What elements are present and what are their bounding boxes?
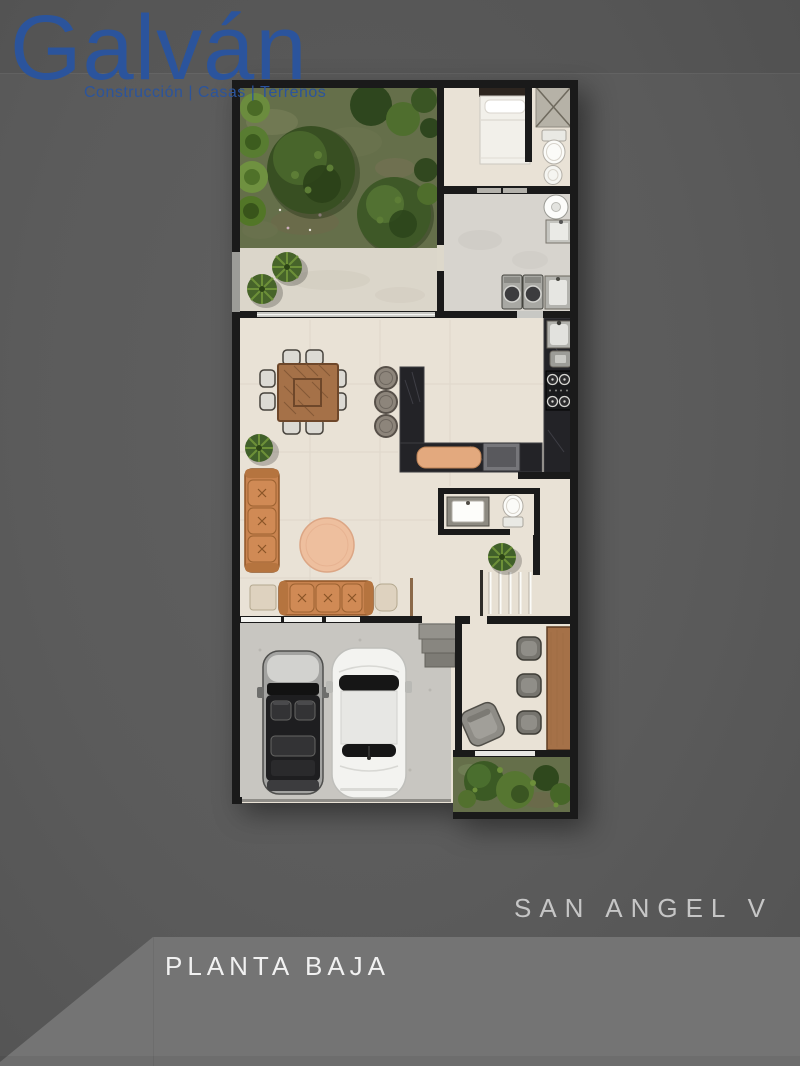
garage-door-window — [326, 617, 360, 622]
round-basin — [544, 195, 568, 219]
entry-steps — [419, 624, 456, 667]
kitchen-sink — [547, 321, 571, 348]
garden-top — [236, 84, 440, 254]
car-white — [326, 648, 412, 798]
small-appliance — [550, 351, 571, 367]
sofa-vertical — [245, 469, 279, 572]
brand-logo: Galván Construcción | Casas | Terrenos — [10, 0, 308, 96]
garage — [239, 623, 456, 802]
bedroom — [479, 87, 532, 164]
side-table-right — [375, 584, 397, 611]
terrace-walkway — [238, 248, 444, 311]
vanity-sink — [447, 497, 489, 526]
desk-chair — [517, 637, 541, 660]
toilet — [503, 495, 523, 527]
shower — [536, 87, 571, 127]
bench-cushion — [417, 447, 481, 468]
sofa-horizontal — [279, 581, 373, 615]
garage-door-window — [284, 617, 322, 622]
brand-tagline: Construcción | Casas | Terrenos — [84, 84, 324, 102]
floor-title: PLANTA BAJA — [165, 951, 390, 982]
garden-bottom — [453, 757, 572, 813]
car-suv — [257, 651, 329, 794]
office-window — [475, 751, 535, 756]
island-counter-vertical — [400, 367, 424, 445]
kitchen-door-gap — [517, 311, 543, 318]
terrace-low-wall — [232, 252, 240, 312]
bidet-sink — [544, 166, 562, 185]
stair-rail — [480, 570, 483, 616]
stairs — [480, 570, 570, 616]
desk — [547, 627, 571, 750]
project-title: SAN ANGEL V — [514, 893, 773, 924]
desk-chair — [517, 711, 541, 734]
side-table-left — [250, 585, 276, 610]
bedroom-sliding-door — [477, 188, 501, 193]
toilet — [542, 130, 566, 164]
dining-table — [278, 364, 338, 421]
utility-sink — [546, 220, 572, 243]
countertop-grill — [483, 443, 520, 471]
washer-machine — [502, 275, 522, 309]
garage-door-window — [241, 617, 281, 622]
laundry-sink — [545, 276, 571, 309]
bed — [479, 87, 532, 164]
round-rug — [300, 518, 354, 572]
terrace-door-gap — [437, 245, 444, 271]
stove — [546, 371, 571, 410]
open-door-leaf — [410, 578, 413, 619]
half-bathroom — [447, 495, 523, 527]
stools — [375, 367, 397, 437]
driveway-edge — [239, 799, 451, 802]
bedroom-sliding-door — [503, 188, 527, 193]
floor-plan-rendering — [232, 80, 578, 819]
brand-name: Galván — [10, 0, 308, 96]
dryer-machine — [523, 275, 543, 309]
desk-chair — [517, 674, 541, 697]
